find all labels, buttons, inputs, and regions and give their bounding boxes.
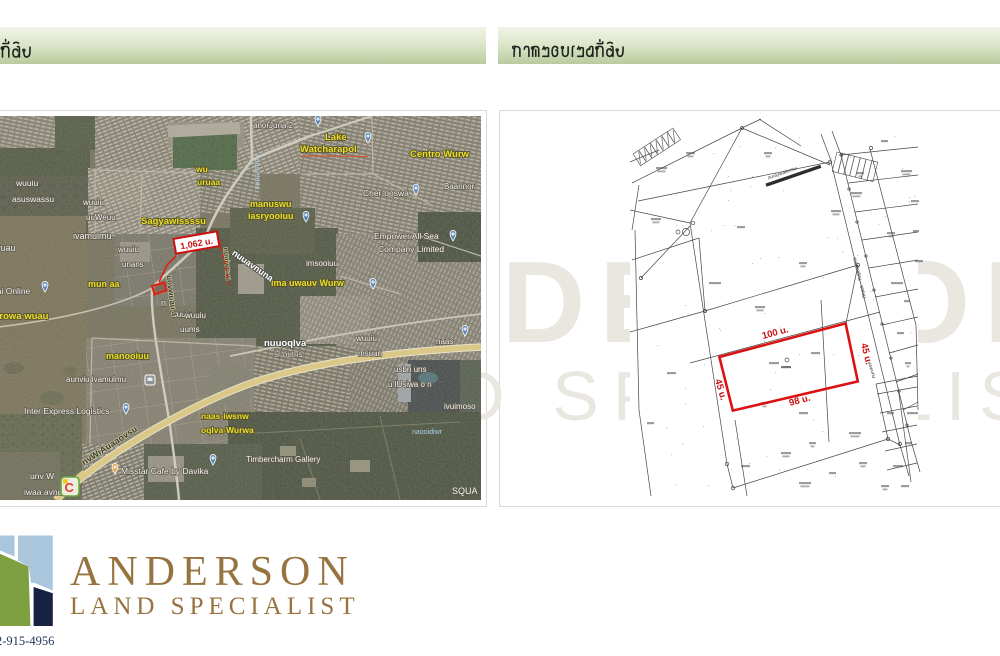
svg-text:nvWiAuaaovsu: nvWiAuaaovsu	[80, 424, 139, 467]
svg-text:Timbercharm Gallery: Timbercharm Gallery	[246, 455, 320, 464]
svg-text:Inter Express Logistics: Inter Express Logistics	[24, 406, 110, 416]
svg-text:ivuimoso: ivuimoso	[444, 402, 476, 411]
svg-text:uuWeuu: uuWeuu	[86, 213, 116, 222]
svg-text:wuuiu: wuuiu	[117, 245, 139, 254]
svg-text:uovwuau 4: uovwuau 4	[164, 275, 178, 318]
svg-text:nuuoqlva: nuuoqlva	[264, 338, 307, 349]
svg-text:iasryooiuu: iasryooiuu	[248, 211, 294, 221]
svg-text:Company Limited: Company Limited	[378, 244, 444, 254]
svg-text:manooiuu: manooiuu	[106, 351, 149, 361]
svg-text:naooidiwr: naooidiwr	[412, 429, 443, 436]
svg-text:wuuiu: wuuiu	[15, 178, 38, 188]
svg-text:wu: wu	[195, 164, 208, 174]
svg-text:uums: uums	[180, 325, 200, 334]
svg-text:iwuau: iwuau	[0, 243, 16, 253]
svg-text:anorJuna 2: anorJuna 2	[253, 121, 294, 130]
svg-text:Watcharapol: Watcharapol	[300, 144, 357, 155]
svg-text:nuuavnuna: nuuavnuna	[230, 248, 276, 284]
svg-text:unv W: unv W	[30, 471, 54, 481]
svg-text:naas: naas	[436, 337, 453, 346]
svg-text:Cher-ooswa: Cher-ooswa	[363, 188, 409, 198]
svg-text:ima uwauv Wurw: ima uwauv Wurw	[271, 278, 345, 288]
svg-text:usbn uns: usbn uns	[394, 365, 426, 374]
svg-text:Empower All Sea: Empower All Sea	[374, 231, 439, 241]
svg-text:hai Online: hai Online	[0, 286, 31, 296]
svg-text:nuuavnuna: nuuavnuna	[253, 155, 260, 190]
svg-text:aunviu ivamulmu: aunviu ivamulmu	[66, 375, 126, 384]
svg-text:mun aa: mun aa	[88, 279, 121, 289]
svg-text:u lUsiwa o n: u lUsiwa o n	[388, 380, 432, 389]
svg-text:manuswu: manuswu	[250, 199, 292, 209]
svg-text:Baannor: Baannor	[444, 182, 475, 191]
svg-text:Sagyawissssu: Sagyawissssu	[141, 216, 206, 227]
svg-text:msuun: msuun	[358, 349, 382, 358]
svg-text:sr outns: sr outns	[274, 350, 302, 359]
svg-text:unans: unans	[122, 260, 144, 269]
svg-text:asuswassu: asuswassu	[12, 194, 54, 204]
svg-text:wuuiu: wuuiu	[184, 311, 206, 320]
svg-text:wuuiu: wuuiu	[355, 334, 377, 343]
svg-text:Lake: Lake	[325, 132, 347, 143]
svg-text:imsooiuu: imsooiuu	[306, 259, 338, 268]
svg-text:naas-iwsnw: naas-iwsnw	[201, 411, 249, 421]
svg-text:wuuiu: wuuiu	[82, 198, 104, 207]
svg-text:Misstar Cafe by Davika: Misstar Cafe by Davika	[121, 466, 209, 476]
svg-text:ivamulmu: ivamulmu	[73, 231, 112, 241]
svg-text:uruaa: uruaa	[197, 177, 220, 187]
svg-text:Centro Wurw: Centro Wurw	[410, 149, 470, 160]
svg-text:SQUA: SQUA	[452, 486, 478, 496]
svg-text:oqlva-Wurwa: oqlva-Wurwa	[201, 425, 254, 435]
svg-text:wrowa wuau: wrowa wuau	[0, 311, 49, 322]
